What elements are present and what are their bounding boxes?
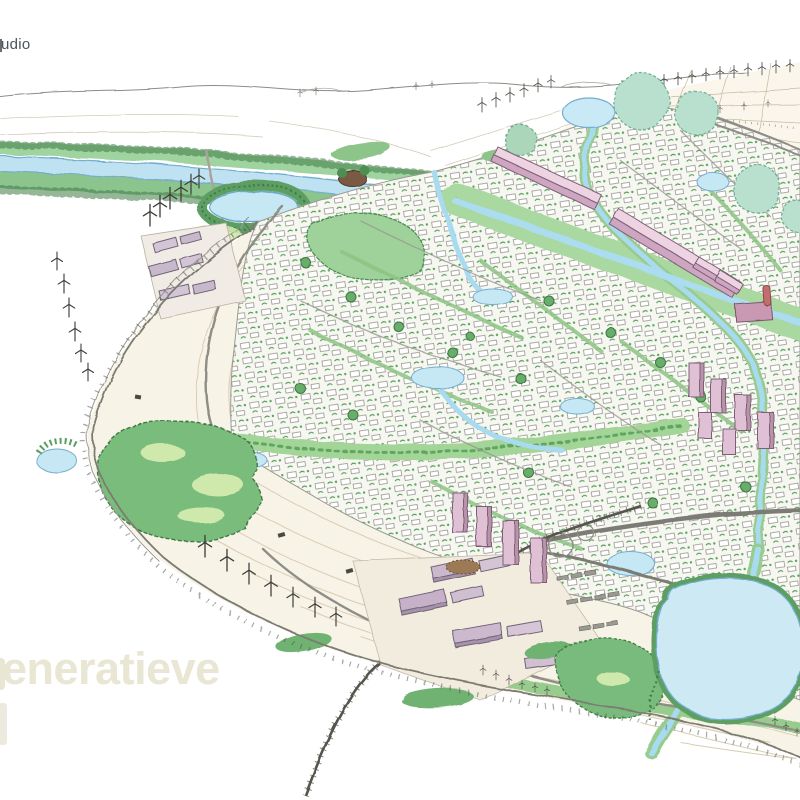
main-title: eneratieve [2,646,220,691]
pond-southeast [648,576,800,720]
title-second-line-sliver [0,703,7,745]
wind-turbine-group-top-middle [298,75,555,112]
poster: udio eneratieve [0,0,800,800]
dirt-patch [445,559,479,573]
studio-logo-text: udio [1,37,31,52]
